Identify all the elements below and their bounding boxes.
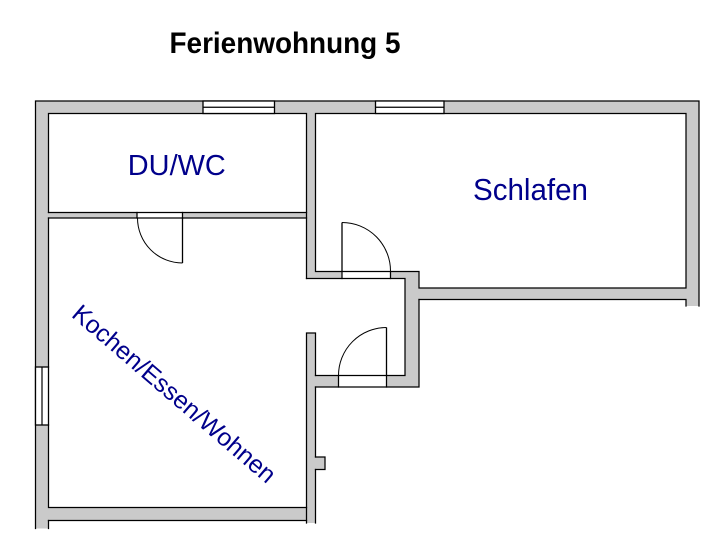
svg-text:Schlafen: Schlafen <box>473 173 588 207</box>
svg-text:DU/WC: DU/WC <box>128 150 226 182</box>
svg-text:Ferienwohnung 5: Ferienwohnung 5 <box>170 27 401 60</box>
